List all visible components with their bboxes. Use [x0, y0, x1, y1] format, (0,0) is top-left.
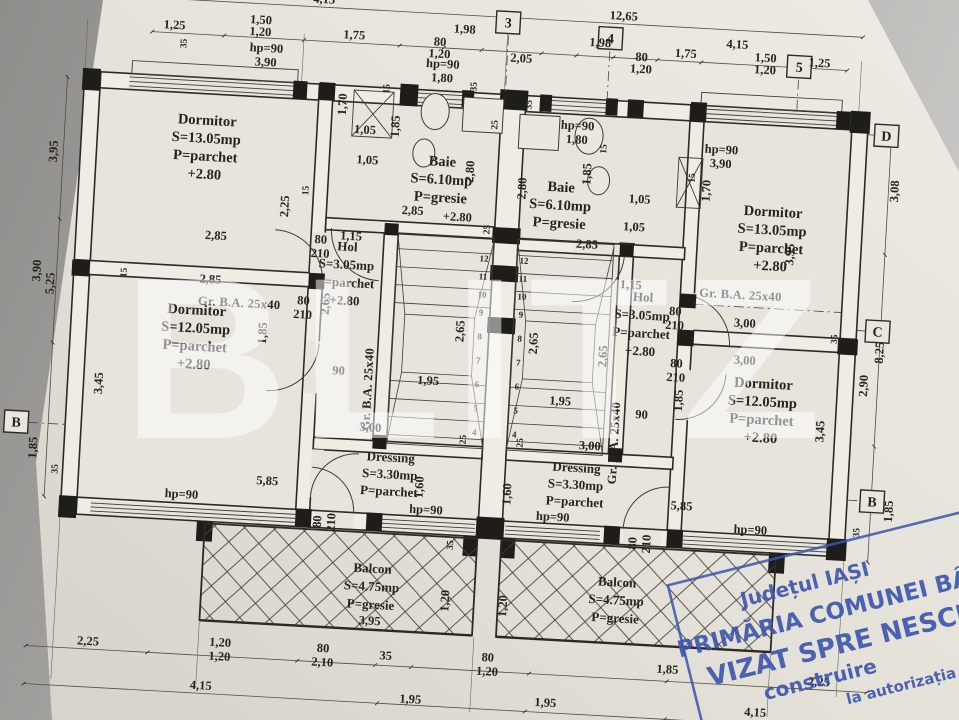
level-label: +2.80 [442, 209, 472, 225]
dim-label: 1,05 [354, 122, 377, 137]
dim-label: 35 [379, 648, 392, 663]
dim-label: 15 [599, 144, 610, 154]
dim-label: 1,20 [630, 61, 653, 76]
dim-label: 5,25 [42, 272, 57, 295]
dim-label: 2,10 [311, 655, 334, 670]
dim-label: 1,20 [249, 24, 272, 39]
watermark: BLITZ [122, 230, 833, 487]
door-height: 210 [639, 534, 654, 554]
dim-label: 1,25 [163, 17, 186, 32]
dim-label: 1,70 [335, 93, 350, 116]
room-dormitor13-left-name: Dormitor [178, 111, 238, 130]
window-label: hp=90 [164, 486, 198, 502]
window-label: hp=90 [409, 502, 443, 518]
dim-label: 1,85 [25, 436, 40, 459]
window-size: 1,80 [431, 70, 454, 85]
dim-label: 1,70 [699, 179, 714, 202]
dim-label: 2,90 [856, 375, 871, 398]
dim-label: 1,95 [534, 695, 557, 710]
dim-label: 1,20 [437, 590, 452, 613]
floor-plan-photo: 3 4 5 D C B B Dormitor S=13.05mp P=parch… [0, 0, 959, 720]
dim-label: 4,15 [744, 705, 767, 720]
dim-label: 35 [446, 540, 457, 550]
dim-label: 1,95 [399, 691, 422, 706]
dim-label: 1,98 [589, 35, 612, 50]
window-label: hp=90 [733, 522, 767, 538]
room-baie-left-name: Baie [428, 153, 457, 171]
dim-label: 1,75 [674, 46, 697, 61]
dim-label: 1,85 [656, 662, 679, 677]
dim-label: 25 [490, 120, 501, 130]
dim-label: 1,20 [495, 595, 510, 618]
room-dormitor13-right-name: Dormitor [743, 203, 803, 222]
dim-label: 4,15 [189, 678, 212, 693]
dim-label: 35 [524, 100, 535, 110]
dim-label: 35 [469, 81, 480, 91]
dim-label: 1,75 [343, 27, 366, 42]
dim-label: 1,25 [808, 55, 831, 70]
room-balcon-left-floor: P=gresie [346, 595, 395, 613]
dim-label: 80 [316, 641, 329, 656]
grid-marker-D: D [881, 130, 892, 146]
dim-label: 1,20 [476, 664, 499, 679]
balcony-left [199, 523, 477, 635]
dim-label: 1,20 [754, 62, 777, 77]
dim-label: 1,85 [579, 163, 594, 186]
dim-label: 80 [481, 650, 494, 665]
washer-icon [518, 114, 560, 150]
dim-label: 1,85 [881, 500, 896, 523]
window-size: 1,80 [566, 132, 589, 147]
dim-label: 2,25 [77, 633, 100, 648]
dim-label: 1,20 [208, 649, 231, 664]
dim-label: 2,80 [462, 160, 477, 183]
dim-label: 35 [502, 547, 513, 557]
dim-label: 3,95 [46, 140, 61, 163]
grid-marker-B: B [867, 495, 877, 510]
grid-marker-5: 5 [795, 61, 803, 76]
room-balcon-left-name: Balcon [353, 560, 393, 577]
dim-label: 2,80 [514, 177, 529, 200]
dim-label: 15 [688, 173, 699, 183]
dim-label: 8,25 [872, 341, 887, 364]
door-width: 80 [310, 515, 325, 528]
balcon-left-length: 3,95 [358, 613, 381, 628]
window-span: 5,85 [670, 498, 693, 513]
dim-label: 15 [382, 84, 393, 94]
dim-label: 4,15 [726, 37, 749, 52]
dim-label: 1,98 [454, 21, 477, 36]
window-size: 3,90 [254, 54, 277, 69]
dim-label: 1,05 [356, 152, 379, 167]
dim-label: 1,85 [388, 115, 403, 138]
dim-label: 2,05 [510, 51, 533, 66]
dim-label: 35 [50, 464, 61, 474]
dim-label: 1,05 [628, 191, 651, 206]
dim-label: 12,65 [609, 8, 638, 24]
dim-label: 3,90 [29, 259, 44, 282]
room-balcon-right-floor: P=gresie [591, 609, 640, 627]
dim-label: 2,25 [277, 195, 292, 218]
dim-label: 35 [179, 38, 190, 48]
floor-plan-drawing: 3 4 5 D C B B Dormitor S=13.05mp P=parch… [0, 0, 959, 720]
dim-label: 1,20 [428, 46, 451, 61]
door-width: 80 [625, 537, 640, 550]
grid-marker-B-left: B [11, 415, 21, 430]
dim-label: 1,20 [209, 635, 232, 650]
dim-label: 3,08 [887, 180, 902, 203]
door-height: 210 [324, 513, 339, 533]
room-balcon-right-name: Balcon [598, 573, 638, 590]
dim-label: 3,45 [91, 372, 106, 395]
room-balcon-right-area: S=4.75mp [588, 591, 644, 609]
window-size: 3,90 [709, 156, 732, 171]
room-balcon-left-area: S=4.75mp [343, 577, 399, 595]
window-label: hp=90 [536, 509, 570, 525]
grid-marker-3: 3 [504, 16, 512, 31]
dim-label: 15 [301, 185, 312, 195]
room-dormitor13-left-level: +2.80 [187, 166, 221, 184]
grid-marker-C: C [872, 325, 883, 341]
room-baie-right-name: Baie [547, 179, 576, 197]
dim-label: 2,85 [401, 203, 424, 218]
